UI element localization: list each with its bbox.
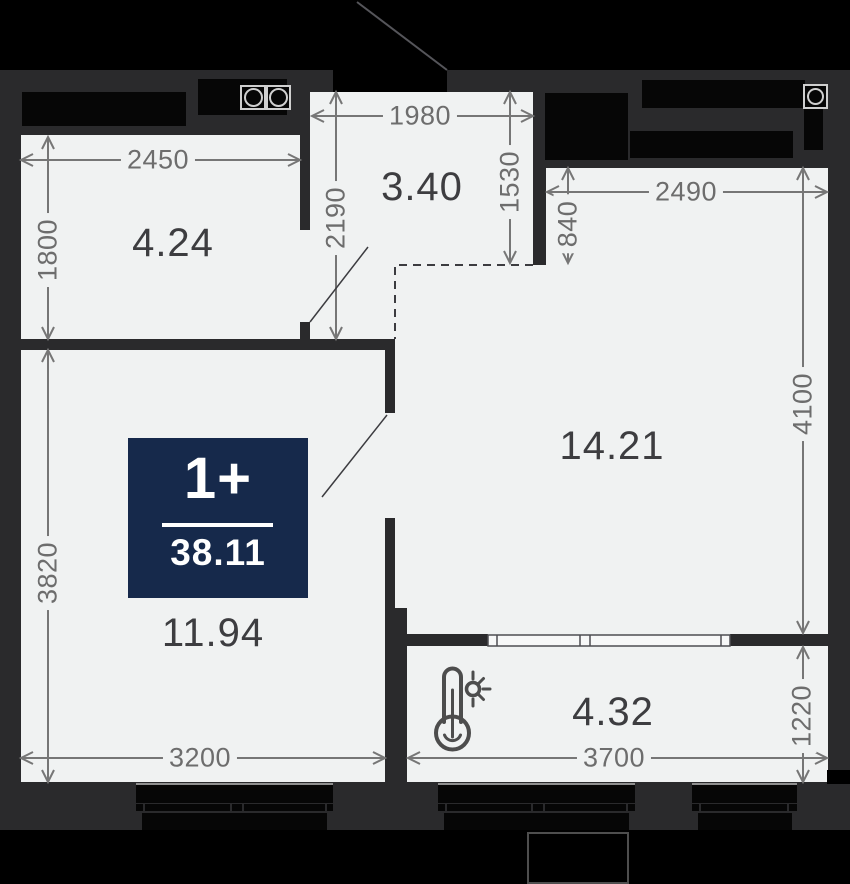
kitchen-counter <box>22 92 186 126</box>
dim-3700-label: 3700 <box>577 744 651 773</box>
kitchen-zone-dashed-border <box>395 265 533 339</box>
badge-rooms-count: 1+ <box>128 450 308 508</box>
stove-burner-icon <box>266 85 291 110</box>
balcony-rail-segment <box>447 804 531 811</box>
wall-kitchen-door-jamb <box>300 322 310 339</box>
balcony-rail-outer <box>698 813 792 830</box>
dim-840-label: 840 <box>554 195 583 254</box>
kitchen-area-label: 4.24 <box>132 223 214 263</box>
entrance-opening <box>333 0 447 92</box>
wall-bedroom-door-jamb <box>385 518 395 608</box>
balcony-rail-outer <box>142 813 327 830</box>
stove-burner-icon <box>240 85 266 110</box>
balcony-rail-segment <box>232 804 242 811</box>
balcony-rail <box>438 783 635 803</box>
dim-1980-label: 1980 <box>383 102 457 131</box>
entry-wardrobe <box>545 93 628 160</box>
balcony-rail-segment <box>545 804 626 811</box>
dim-2190-label: 2190 <box>322 181 351 255</box>
wall-left <box>0 70 21 830</box>
wall-bedroom-living-upper <box>385 350 395 413</box>
outside-right-notch <box>827 770 850 784</box>
living-area-label: 14.21 <box>559 426 664 466</box>
washing-machine-icon <box>803 84 828 109</box>
balcony-rail-segment <box>327 804 333 811</box>
loggia-window <box>488 635 730 646</box>
wall-kitchen-hall <box>300 70 310 230</box>
balcony-rail-segment <box>145 804 230 811</box>
balcony-rail <box>136 783 333 803</box>
entry-counter-top <box>642 80 805 108</box>
dim-3200-label: 3200 <box>163 744 237 773</box>
thermometer-sun-icon <box>436 669 490 750</box>
dim-1800-label: 1800 <box>34 213 63 287</box>
balcony-rail-segment <box>692 804 699 811</box>
balcony-rail <box>692 783 797 803</box>
balcony-rail-segment <box>438 804 445 811</box>
balcony-rail-segment <box>789 804 797 811</box>
wall-kitchen-bedroom <box>0 339 395 350</box>
dim-1530-label: 1530 <box>496 145 525 219</box>
loggia-area-label: 4.32 <box>572 692 654 732</box>
dim-2490-label: 2490 <box>649 178 723 207</box>
wall-top-mid-right <box>447 70 533 92</box>
dim-1220-label: 1220 <box>788 679 817 753</box>
dim-2450-label: 2450 <box>121 146 195 175</box>
badge-divider <box>162 523 273 527</box>
washer-cabinet <box>804 109 823 150</box>
hall-area-label: 3.40 <box>381 167 463 207</box>
bedroom-area-label: 11.94 <box>162 613 264 653</box>
balcony-rail-segment <box>701 804 787 811</box>
badge-total-area: 38.11 <box>128 534 308 571</box>
balcony-rail-outer <box>444 813 629 830</box>
floor-plan-canvas: 2450 1980 2490 3200 3700 1800 2190 1530 … <box>0 0 850 884</box>
dim-4100-label: 4100 <box>789 367 818 441</box>
dim-3820-label: 3820 <box>34 536 63 610</box>
balcony-rail-segment <box>533 804 543 811</box>
wall-loggia-left <box>407 634 488 646</box>
balcony-rail-segment <box>136 804 143 811</box>
wall-bedroom-column <box>385 608 407 782</box>
balcony-rail-segment <box>244 804 325 811</box>
entry-counter-bottom <box>630 131 793 158</box>
apartment-badge: 1+ 38.11 <box>128 438 308 598</box>
balcony-pier <box>527 832 629 884</box>
balcony-rail-segment <box>628 804 635 811</box>
wall-right <box>828 70 850 770</box>
bedroom-door-swing <box>322 415 387 497</box>
kitchen-door-swing <box>310 247 368 322</box>
wall-loggia-right <box>730 634 828 646</box>
wall-top-mid-left <box>310 70 333 92</box>
outside-bottom <box>0 830 850 884</box>
